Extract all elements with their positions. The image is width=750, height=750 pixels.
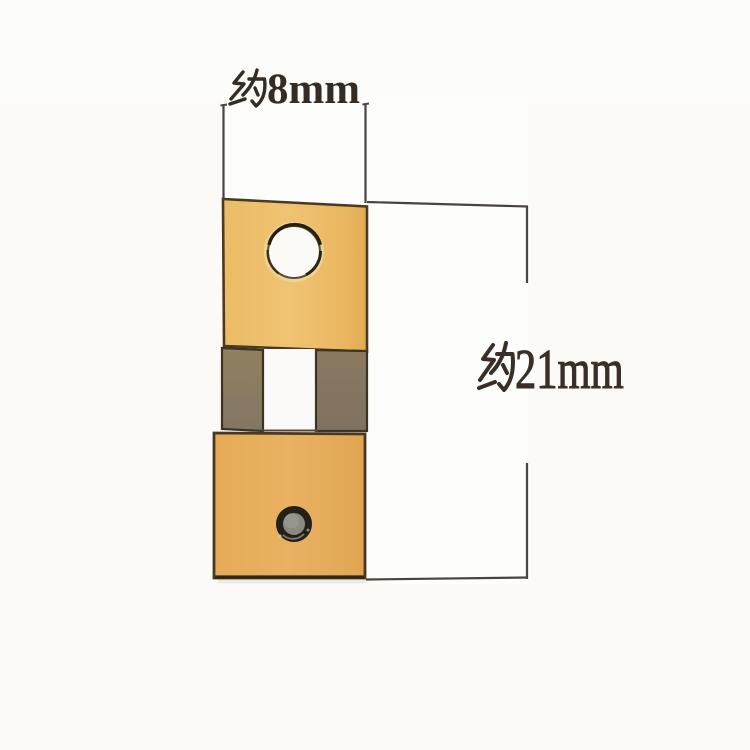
svg-text:8mm: 8mm	[267, 66, 360, 113]
svg-text:21mm: 21mm	[515, 338, 624, 400]
